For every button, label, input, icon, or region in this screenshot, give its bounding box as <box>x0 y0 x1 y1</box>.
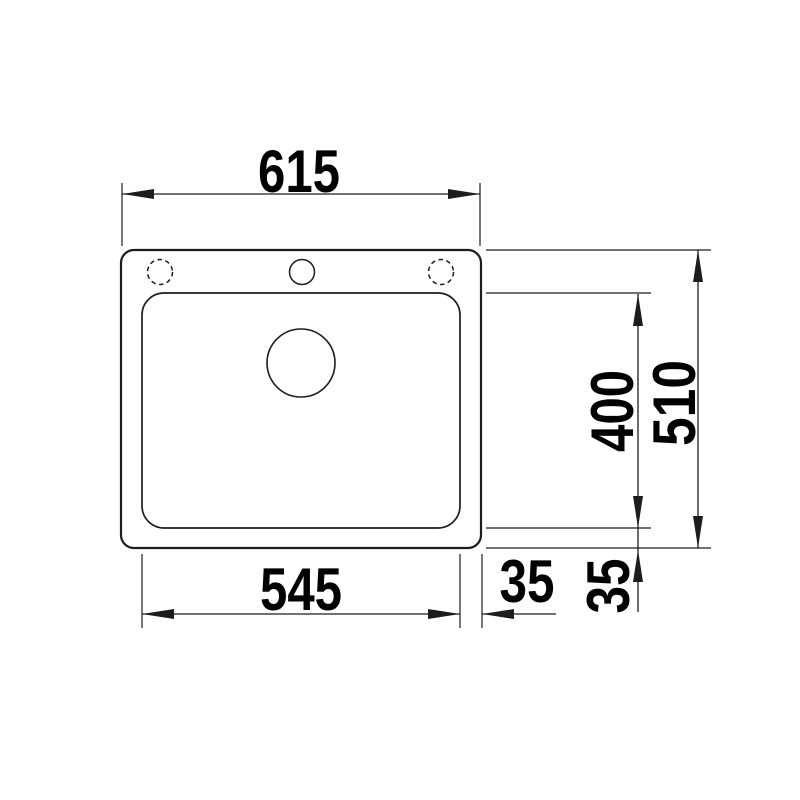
arrowhead-up-icon <box>633 294 643 326</box>
arrowhead-down-icon <box>693 516 703 548</box>
sink-outer-rim-outline <box>121 250 481 548</box>
faucet-hole-center <box>290 260 315 285</box>
dim-offset-right: 35 <box>482 548 556 628</box>
dim-basin-depth: 400 <box>486 293 651 528</box>
arrowhead-right-icon <box>428 609 460 619</box>
arrowhead-up-icon <box>693 250 703 282</box>
dim-label-offset-bottom: 35 <box>575 559 642 614</box>
dim-label-offset-right: 35 <box>500 548 555 615</box>
drain-hole-circle <box>267 329 335 397</box>
arrowhead-right-icon <box>448 189 480 199</box>
faucet-hole-left-dashed <box>148 260 173 285</box>
arrowhead-left-icon <box>122 189 154 199</box>
arrowhead-left-icon <box>142 609 174 619</box>
arrowhead-down-icon <box>633 496 643 528</box>
dim-label-overall-depth: 510 <box>641 360 708 446</box>
dim-offset-bottom: 35 <box>575 528 643 614</box>
drawing-canvas: 615 545 35 400 <box>0 0 800 800</box>
dim-label-basin-width: 545 <box>260 556 342 623</box>
dim-label-basin-depth: 400 <box>579 370 646 452</box>
dim-label-overall-width: 615 <box>258 138 340 205</box>
sink-technical-drawing: 615 545 35 400 <box>0 0 800 800</box>
faucet-hole-right-dashed <box>429 260 454 285</box>
dim-overall-width: 615 <box>122 138 480 246</box>
sink-body <box>121 250 481 548</box>
dim-basin-width: 545 <box>142 554 460 628</box>
faucet-holes <box>148 260 454 285</box>
